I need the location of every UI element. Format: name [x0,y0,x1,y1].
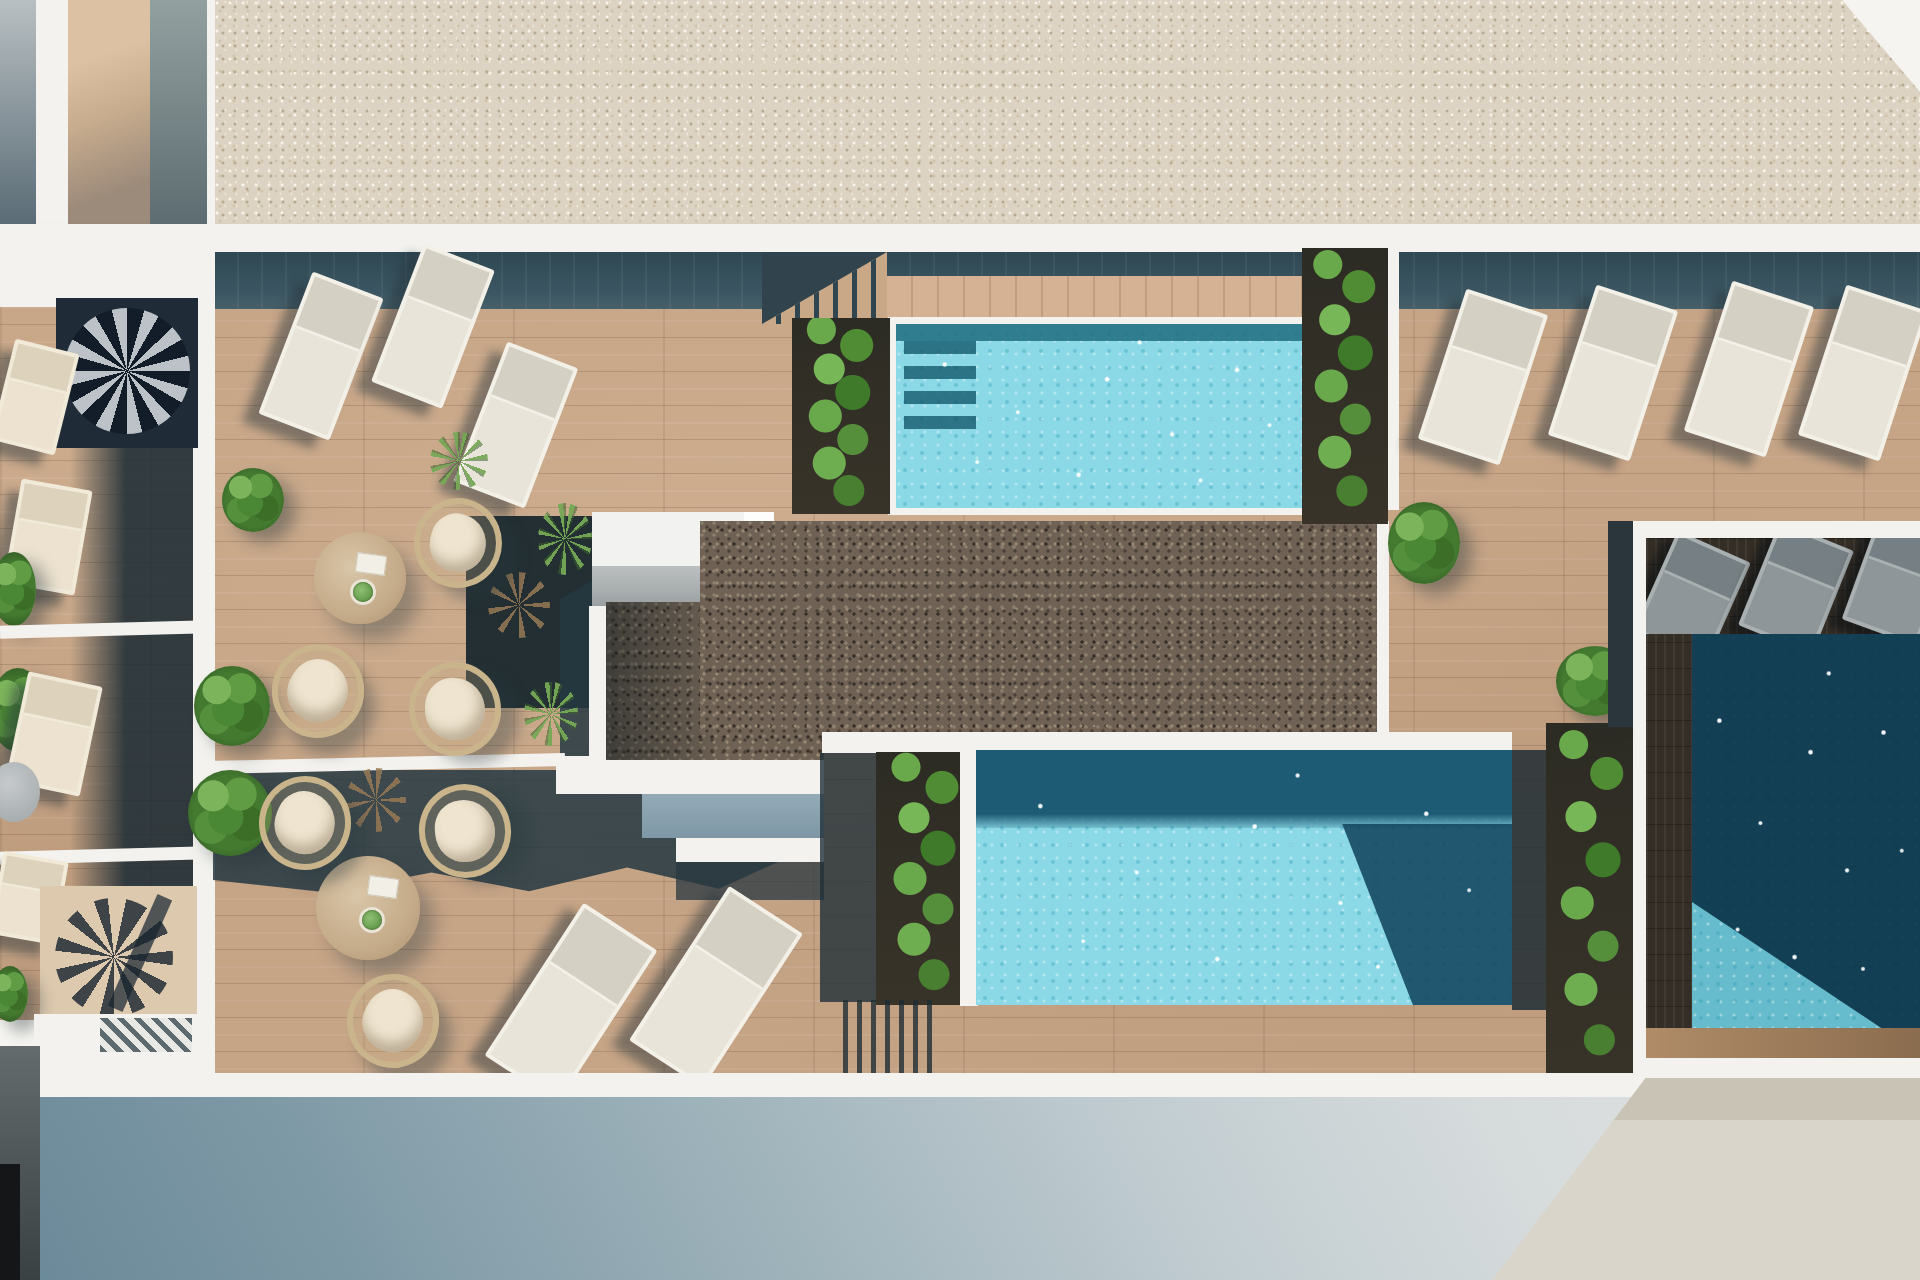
water-sparkles [896,324,1302,508]
shaded-lounger-row [1646,538,1920,634]
gravel-main [700,521,1378,734]
climbing-plants-planter [1546,723,1638,1083]
left-wood-strip [68,0,150,235]
rattan-chair [414,498,502,588]
center-pool-water [976,750,1512,1005]
pool-right-shadow-deck [1512,750,1550,1010]
left-gray-strip [150,0,207,235]
right-pool-deck-strip [1646,1028,1920,1062]
water-sparkles [976,750,1512,1005]
pool-top-lit-strip [885,276,1307,323]
roof-gravel-strip [215,0,1920,228]
dried-plant [346,768,406,832]
table-plant [353,582,373,602]
left-wall-edge [36,0,68,235]
round-table [316,856,420,960]
round-table [314,532,406,624]
shaded-lounger [1646,538,1751,634]
shrub [222,468,284,532]
right-pool-water [1692,634,1920,1028]
walkway-slats [843,1000,939,1077]
table-plant [362,910,382,930]
shrub [194,666,270,746]
parapet-left-block [0,224,215,308]
zone-border-left [1633,521,1646,1081]
yucca-plant [430,432,488,490]
step-band-lower [676,838,824,862]
gravel-right-border [1377,521,1389,735]
climbing-plants-planter [1302,248,1388,524]
zone-border-top [1633,521,1920,538]
pool-side-plants [792,318,890,514]
vent-grate [100,1018,192,1052]
spiral-staircase [64,308,190,434]
book [355,552,387,576]
stair-platform [56,298,198,448]
center-pool-shadow-deck [820,753,880,1002]
yucca-plant [524,682,578,746]
water-sparkles [1692,634,1920,1028]
planter-wall [1388,248,1399,510]
skylight-edge [589,606,607,758]
left-white-strip [207,0,215,235]
top-pool-water [896,324,1302,508]
deck-steps-top [762,252,887,324]
terrace-bottom-edge [0,1073,1645,1099]
shadow-under-steps [676,862,824,900]
zone-edge-dark [1608,521,1636,727]
dried-plant [488,572,550,638]
shaded-lounger [1738,538,1854,634]
left-wall-strip [0,0,36,250]
step-wall-slate [642,794,824,838]
parapet-band [0,224,1920,252]
facade-black-recess [0,1164,20,1280]
shrub [1388,502,1460,584]
render-canvas [0,0,1920,1280]
stair-floor [40,886,197,1022]
yucca-plant [538,503,592,575]
step-band-upper [556,756,824,794]
book [367,875,399,899]
